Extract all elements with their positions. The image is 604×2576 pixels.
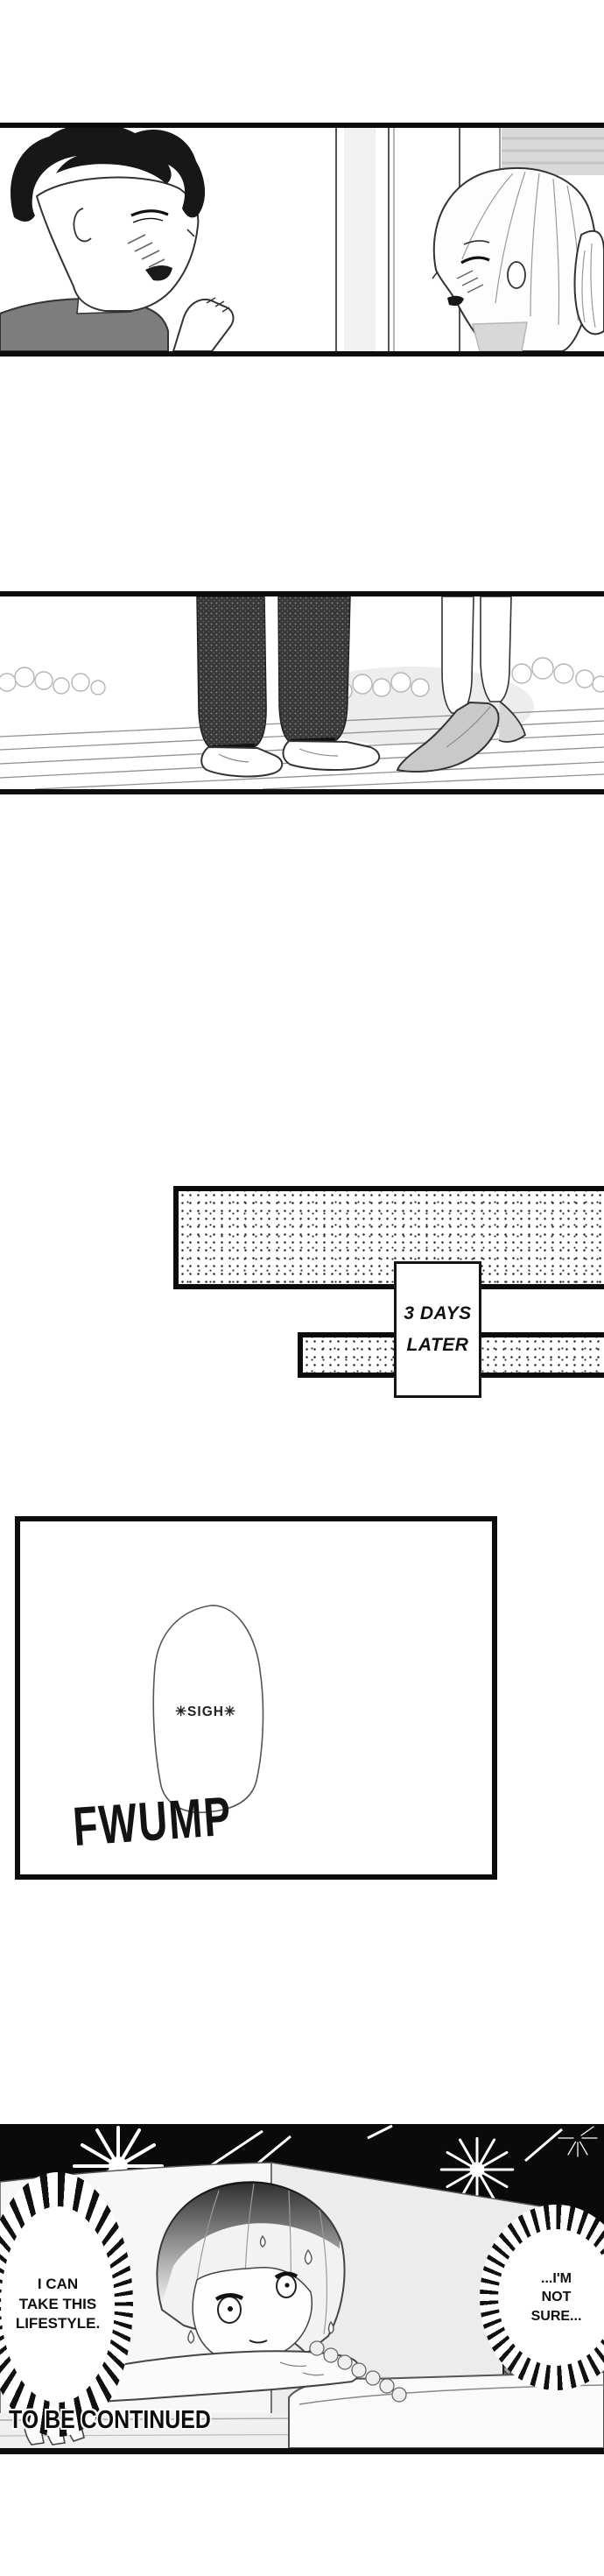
woman-ear [508,262,525,288]
caption-line-1: 3 DAYS [404,1303,471,1324]
panel-couple-talking [0,123,604,356]
panel-couch-worry: I CAN TAKE THIS LIFESTYLE. ...I'M NOT SU… [0,2124,604,2454]
manga-page: 3 DAYS LATER ✳SIGH✳ FWUMP [0,0,604,2576]
right-bubble-line-3: SURE... [531,2307,582,2325]
transition-bar-top [173,1186,604,1289]
panel-1-art [0,128,604,351]
left-bubble-line-2: TAKE THIS [19,2295,96,2314]
fwump-sfx: FWUMP [71,1783,234,1858]
to-be-continued-label: TO BE CONTINUED [9,2406,211,2435]
left-bubble-line-1: I CAN [38,2275,78,2294]
panel-2-art [0,596,604,789]
speech-bubble-right-core: ...I'M NOT SURE... [498,2229,604,2367]
woman-neck-shadow [473,322,527,351]
right-bubble-line-2: NOT [542,2288,572,2306]
sigh-sfx: ✳SIGH✳ [136,1704,276,1720]
left-bubble-line-3: LIFESTYLE. [16,2314,100,2333]
woman-ponytail [575,231,604,335]
caption-line-2: LATER [407,1335,469,1356]
right-bubble-line-1: ...I'M [541,2269,572,2288]
panel-feet-tiptoe [0,591,604,794]
panel-sigh-fwump: ✳SIGH✳ FWUMP [15,1516,497,1880]
speech-bubble-left-core: I CAN TAKE THIS LIFESTYLE. [1,2206,116,2403]
caption-box: 3 DAYS LATER [394,1261,481,1398]
